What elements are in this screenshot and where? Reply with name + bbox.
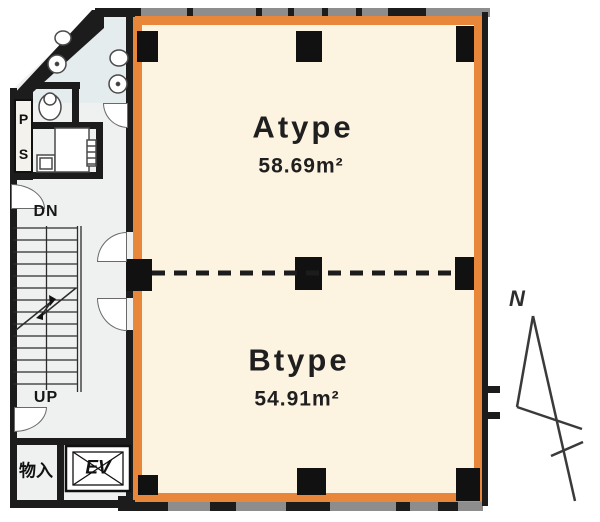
- column: [456, 468, 480, 501]
- elevator-label: EV: [85, 459, 110, 478]
- top-wall-band: [133, 8, 490, 17]
- pipe-space-shaft: P S: [14, 99, 33, 173]
- counter: [55, 128, 89, 172]
- column: [297, 468, 326, 495]
- sink-basin: [40, 158, 52, 169]
- north-arrow: [517, 316, 583, 501]
- pipe-space-label-p: P: [19, 111, 28, 127]
- urinal-drain: [55, 62, 58, 65]
- urinal-drain: [116, 82, 119, 85]
- unit-b-area: 54.91m²: [254, 389, 339, 410]
- right-exterior-wall: [482, 12, 488, 506]
- toilet-tank: [55, 31, 71, 45]
- column: [138, 475, 158, 495]
- north-label: N: [509, 288, 525, 310]
- column: [137, 31, 158, 62]
- toilet-tank: [110, 50, 128, 66]
- column: [455, 257, 474, 290]
- toilet-seat: [44, 93, 56, 105]
- column: [126, 259, 152, 291]
- shelf: [87, 140, 96, 166]
- pipe-space-label-s: S: [19, 146, 28, 162]
- column: [296, 31, 322, 62]
- storage-label: 物入: [19, 463, 53, 480]
- unit-a-name: Atype: [252, 112, 353, 143]
- floor-plan-drawing: [0, 0, 600, 522]
- stairs-up-label: UP: [34, 390, 58, 406]
- unit-a-area: 58.69m²: [258, 156, 343, 177]
- stairs-down-label: DN: [33, 204, 58, 220]
- column: [456, 26, 474, 62]
- unit-b-name: Btype: [248, 345, 349, 376]
- floor-plan-canvas: P S Atype 58.69m² Btype 54.91m² DN UP 物入…: [0, 0, 600, 522]
